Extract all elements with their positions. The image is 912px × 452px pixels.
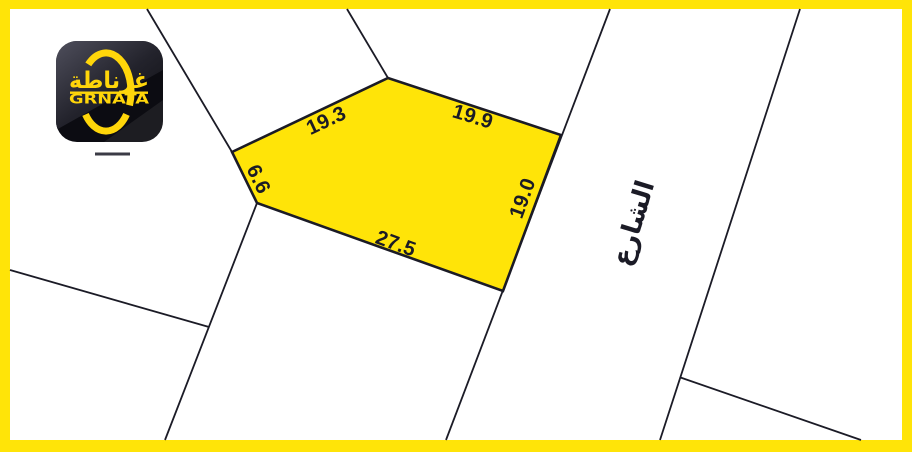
logo-brand-arabic: غرناطة — [69, 68, 149, 94]
site-plan-map: 19.3 19.9 19.0 27.5 6.6 الشارع غرناطة GR… — [0, 0, 912, 452]
logo-brand-latin: GRNATA — [69, 92, 150, 108]
site-plan-page: 19.3 19.9 19.0 27.5 6.6 الشارع غرناطة GR… — [0, 0, 912, 452]
logo-caption-dash — [95, 153, 130, 156]
grnata-logo: غرناطة GRNATA — [56, 41, 163, 156]
